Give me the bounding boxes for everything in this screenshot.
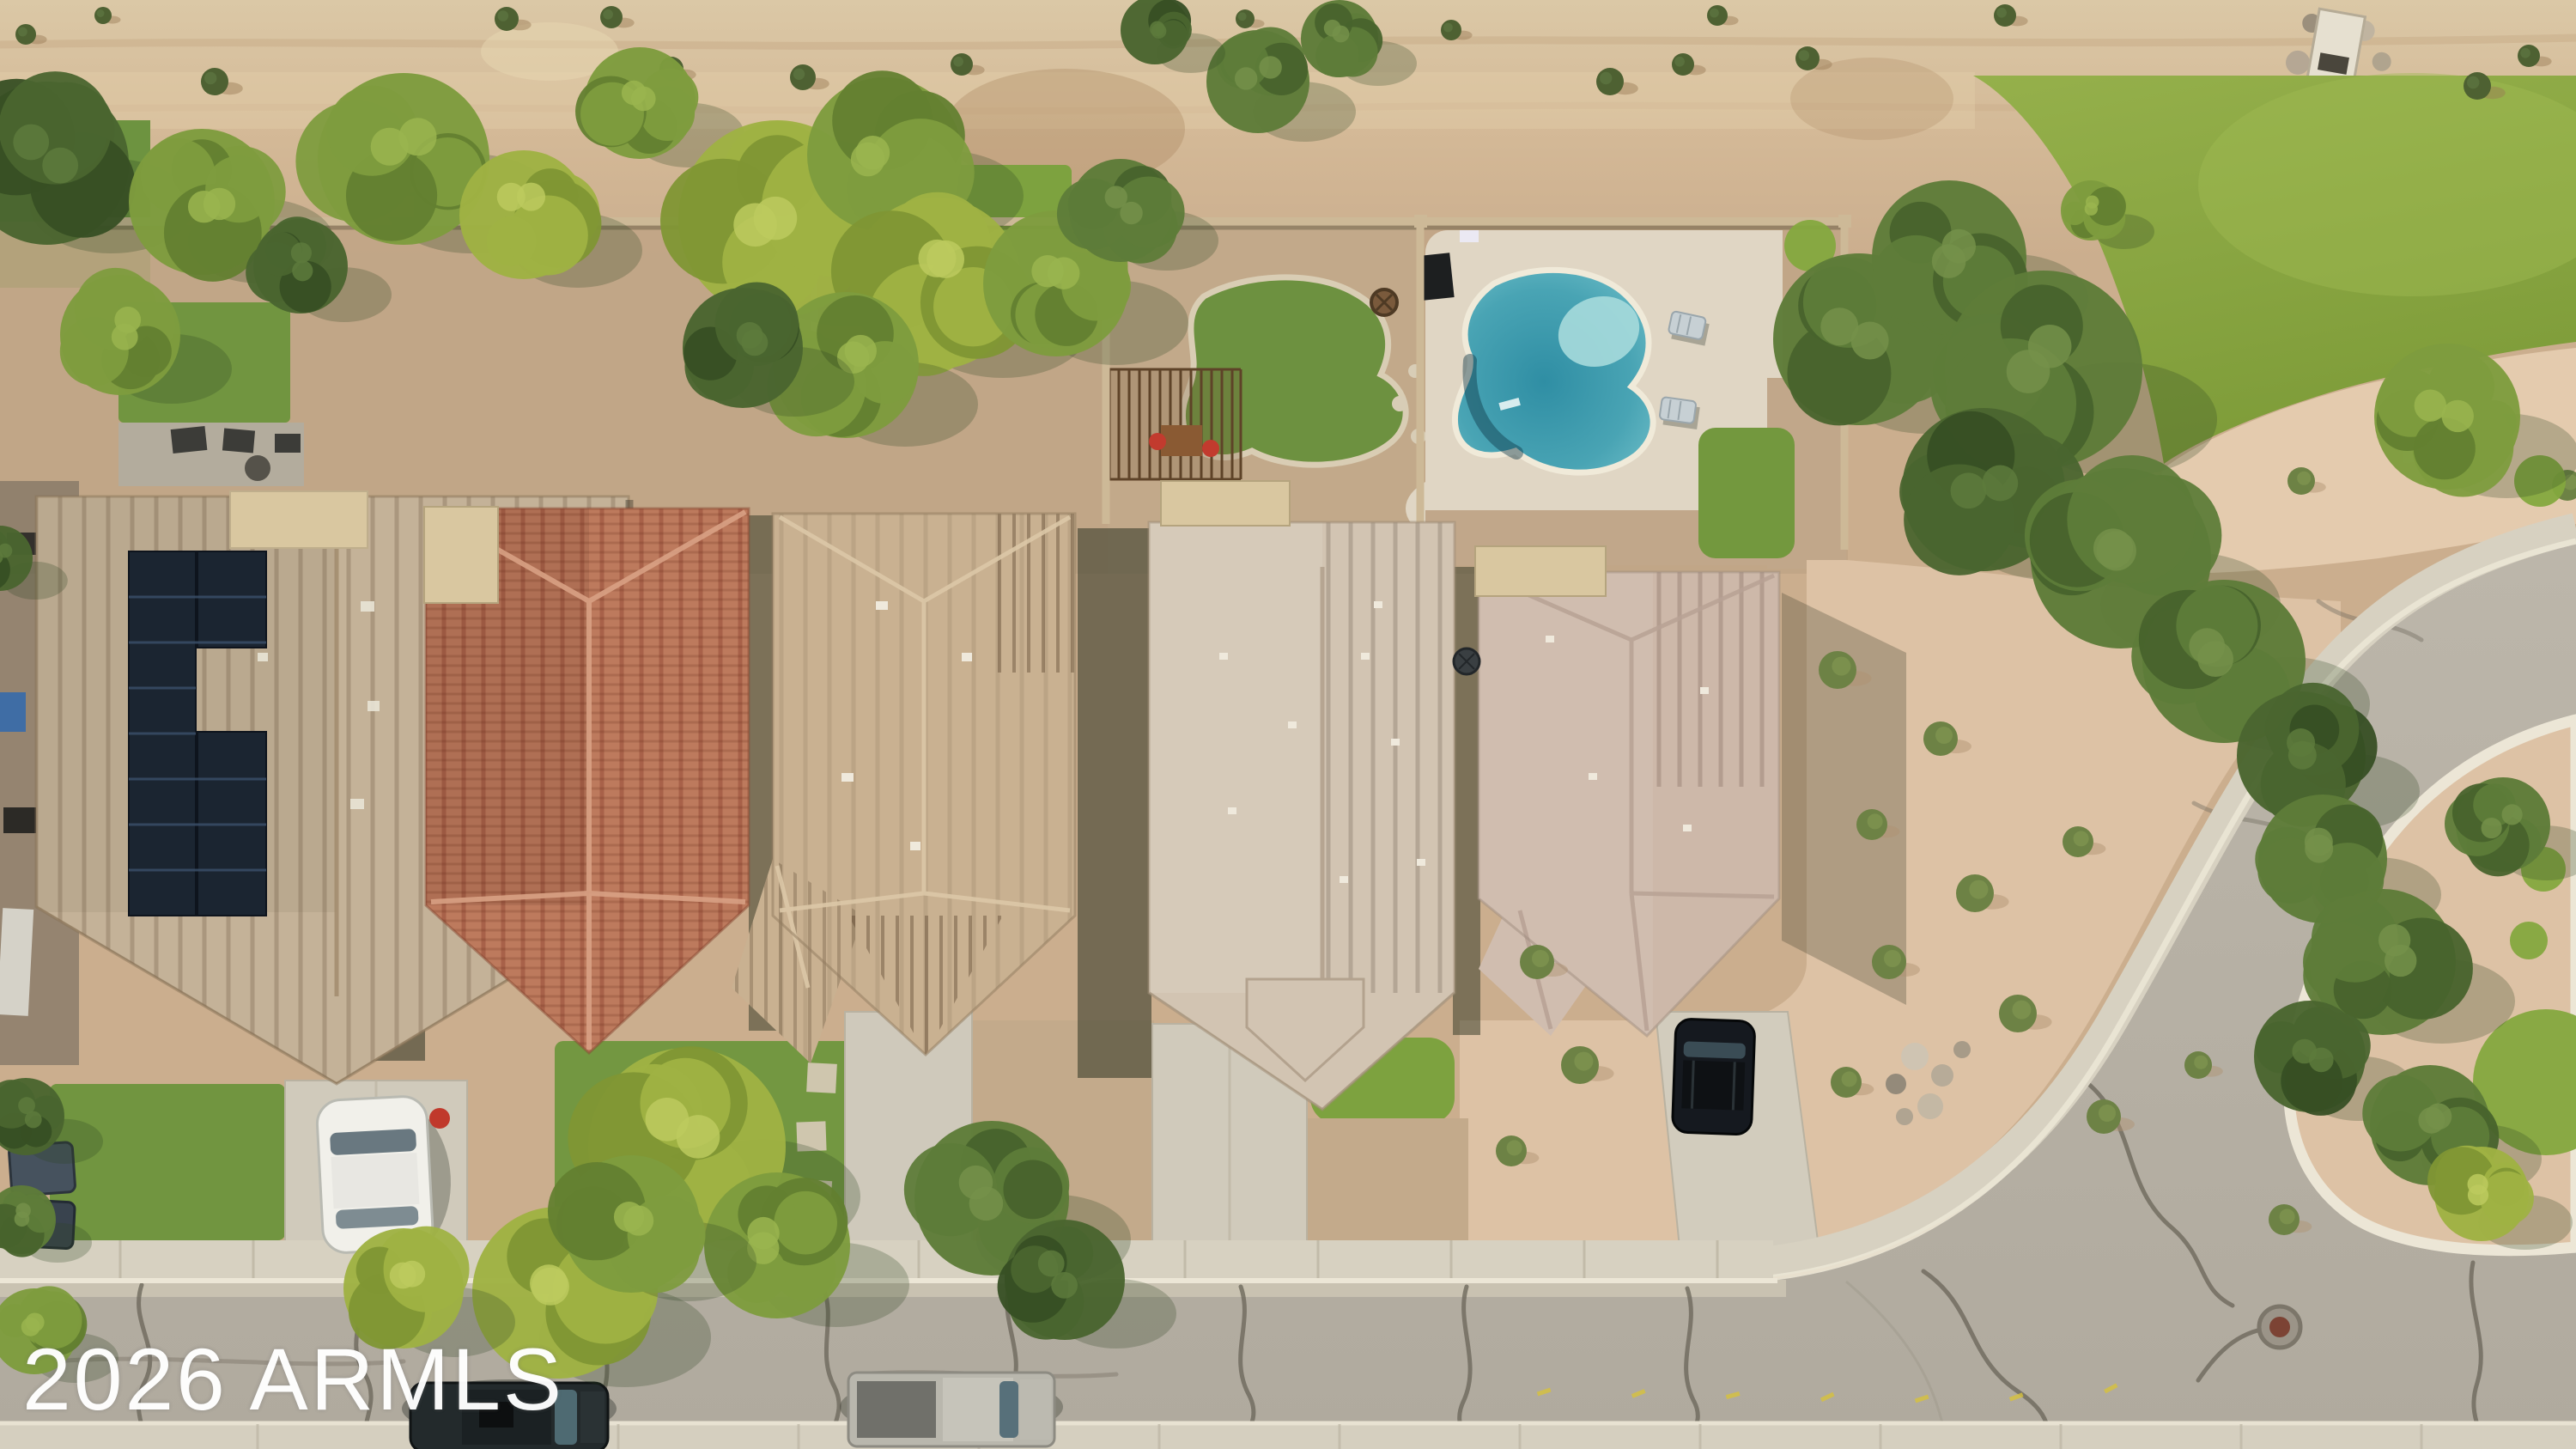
red-chair bbox=[1149, 433, 1166, 450]
windshield bbox=[330, 1129, 416, 1155]
front-gravel bbox=[1305, 1118, 1468, 1252]
armls-watermark: 2026 ARMLS bbox=[22, 1330, 564, 1430]
flat-roof-section bbox=[424, 507, 498, 603]
grass-circle bbox=[2510, 922, 2548, 959]
pergola bbox=[1109, 369, 1241, 479]
silver-pickup-on-street bbox=[840, 1373, 1063, 1446]
pool-yard-lawn bbox=[1698, 428, 1795, 558]
front-lawn bbox=[50, 1084, 285, 1240]
dirt-stain bbox=[1790, 58, 1953, 140]
windshield bbox=[999, 1381, 1018, 1438]
aerial-scene bbox=[0, 0, 2576, 1449]
ac-unit bbox=[1454, 648, 1479, 674]
patio-table bbox=[1161, 425, 1202, 456]
truck-bed bbox=[857, 1381, 936, 1438]
pool-yard bbox=[1406, 230, 1846, 569]
house-4-roof bbox=[1149, 481, 1455, 1110]
fire-pit bbox=[1371, 289, 1397, 315]
aerial-photo: 2026 ARMLS bbox=[0, 0, 2576, 1449]
flat-roof-section bbox=[230, 491, 368, 548]
manhole-cover bbox=[2259, 1306, 2300, 1348]
rv-roof bbox=[0, 908, 33, 1016]
bbq-grill bbox=[1419, 253, 1454, 300]
flat-roof-section bbox=[1161, 481, 1290, 526]
windshield bbox=[1683, 1041, 1746, 1059]
red-chair bbox=[1202, 440, 1219, 457]
backyard-patio bbox=[118, 423, 304, 486]
solar-panel-array bbox=[129, 551, 266, 916]
blue-tarp bbox=[0, 692, 26, 732]
basketball-hoop bbox=[429, 1108, 450, 1129]
lounge-chair bbox=[1659, 397, 1701, 429]
flat-roof-section bbox=[1475, 546, 1606, 596]
swimming-pool bbox=[1455, 270, 1653, 472]
side-table bbox=[1460, 230, 1479, 242]
black-suv bbox=[1672, 1019, 1755, 1135]
